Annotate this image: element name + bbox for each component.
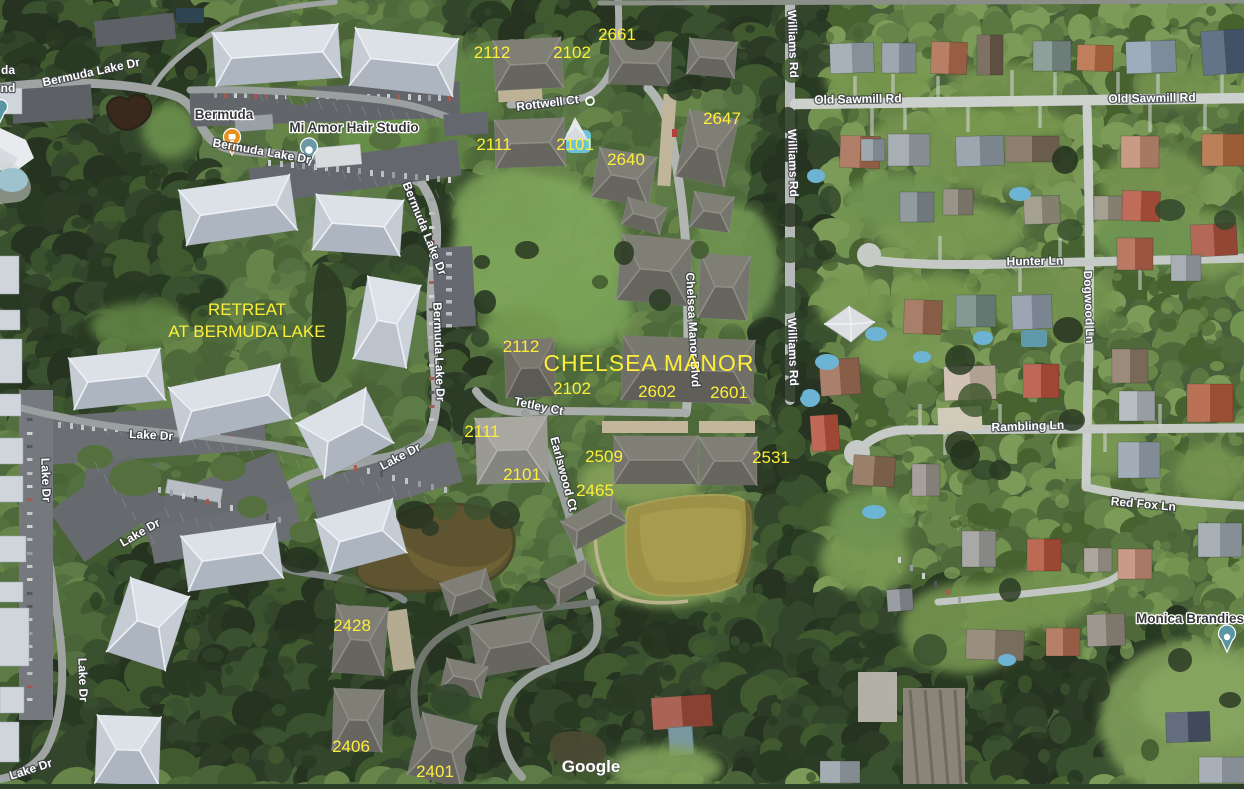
svg-text:2647: 2647: [703, 109, 741, 128]
svg-text:2101: 2101: [503, 465, 541, 484]
svg-text:2465: 2465: [576, 481, 614, 500]
svg-text:2601: 2601: [710, 383, 748, 402]
svg-text:Mi Amor Hair Studio: Mi Amor Hair Studio: [289, 120, 418, 135]
svg-text:Lake Dr: Lake Dr: [75, 658, 91, 703]
svg-text:Old Sawmill Rd: Old Sawmill Rd: [814, 91, 902, 107]
svg-text:2509: 2509: [585, 447, 623, 466]
svg-text:Lake Dr: Lake Dr: [38, 458, 54, 503]
svg-text:Williams Rd: Williams Rd: [785, 10, 801, 78]
svg-text:2112: 2112: [503, 337, 540, 356]
svg-text:RETREAT: RETREAT: [208, 300, 286, 319]
svg-text:2102: 2102: [553, 43, 591, 62]
svg-text:2531: 2531: [752, 448, 790, 467]
svg-text:2111: 2111: [476, 135, 511, 154]
svg-text:2661: 2661: [598, 25, 636, 44]
svg-text:CHELSEA MANOR: CHELSEA MANOR: [543, 350, 754, 376]
svg-text:nd: nd: [1, 81, 16, 95]
svg-text:Google: Google: [562, 757, 621, 776]
svg-text:2102: 2102: [553, 379, 591, 398]
svg-text:Bermuda: Bermuda: [195, 107, 254, 122]
svg-text:2602: 2602: [638, 382, 676, 401]
svg-text:da: da: [1, 63, 15, 77]
svg-text:2640: 2640: [607, 150, 645, 169]
svg-text:Williams Rd: Williams Rd: [785, 129, 801, 197]
svg-text:AT BERMUDA LAKE: AT BERMUDA LAKE: [168, 322, 325, 341]
svg-text:2111: 2111: [464, 422, 499, 441]
svg-text:2101: 2101: [556, 135, 594, 154]
svg-text:Old Sawmill Rd: Old Sawmill Rd: [1108, 90, 1196, 106]
svg-text:Dogwood Ln: Dogwood Ln: [1081, 270, 1098, 343]
svg-text:2112: 2112: [474, 43, 511, 62]
svg-text:2428: 2428: [333, 616, 371, 635]
svg-text:Monica Brandies: Monica Brandies: [1136, 611, 1244, 626]
svg-text:Rambling Ln: Rambling Ln: [991, 418, 1064, 435]
svg-text:Williams Rd: Williams Rd: [785, 318, 801, 386]
svg-text:Lake Dr: Lake Dr: [129, 427, 174, 443]
svg-text:Hunter Ln: Hunter Ln: [1006, 254, 1063, 269]
svg-text:2401: 2401: [416, 762, 454, 781]
svg-text:2406: 2406: [332, 737, 370, 756]
